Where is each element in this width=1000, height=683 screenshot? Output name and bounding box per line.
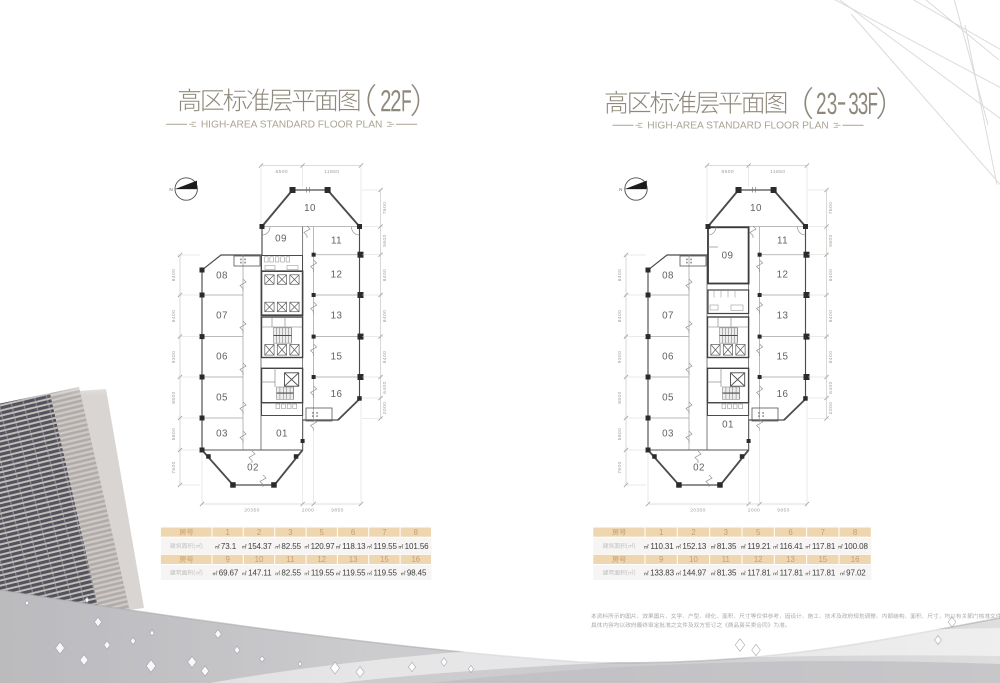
svg-text:9300: 9300 (617, 351, 623, 363)
svg-text:5600: 5600 (382, 234, 388, 246)
svg-text:02: 02 (693, 463, 705, 474)
svg-text:2000: 2000 (828, 402, 834, 414)
svg-text:119.55: 119.55 (311, 569, 335, 578)
svg-text:9850: 9850 (777, 508, 789, 514)
svg-text:117.81: 117.81 (780, 569, 804, 578)
svg-text:15: 15 (380, 555, 389, 564)
svg-text:152.13: 152.13 (682, 542, 707, 551)
svg-text:03: 03 (216, 429, 228, 440)
svg-text:147.11: 147.11 (248, 569, 272, 578)
svg-text:09: 09 (275, 234, 287, 245)
svg-text:06: 06 (662, 352, 674, 363)
svg-text:97.02: 97.02 (846, 569, 866, 578)
svg-text:09: 09 (722, 251, 734, 262)
svg-text:9: 9 (226, 555, 230, 564)
svg-text:2000: 2000 (302, 508, 314, 514)
svg-text:119.55: 119.55 (374, 542, 398, 551)
svg-text:8: 8 (414, 528, 418, 537)
svg-text:7600: 7600 (171, 461, 177, 473)
svg-text:3: 3 (288, 528, 292, 537)
svg-text:100.08: 100.08 (844, 542, 869, 551)
svg-text:1: 1 (226, 528, 230, 537)
svg-text:9850: 9850 (331, 508, 343, 514)
svg-text:01: 01 (722, 420, 734, 431)
svg-text:10: 10 (689, 555, 698, 564)
svg-text:16: 16 (777, 389, 789, 400)
svg-text:69.67: 69.67 (219, 569, 239, 578)
svg-text:08: 08 (662, 271, 674, 282)
svg-text:2000: 2000 (748, 508, 760, 514)
svg-text:81.35: 81.35 (717, 542, 737, 551)
svg-text:8400: 8400 (382, 310, 388, 322)
svg-text:01: 01 (276, 429, 288, 440)
svg-text:11: 11 (722, 555, 730, 564)
svg-text:15: 15 (777, 352, 789, 363)
svg-text:117.81: 117.81 (747, 569, 771, 578)
svg-text:10: 10 (255, 555, 264, 564)
svg-text:3: 3 (724, 528, 728, 537)
svg-text:13: 13 (349, 555, 358, 564)
svg-text:11: 11 (777, 236, 788, 247)
svg-text:5: 5 (756, 528, 761, 537)
svg-text:20350: 20350 (244, 508, 260, 514)
svg-text:12: 12 (754, 555, 763, 564)
svg-text:8500: 8500 (276, 169, 288, 175)
svg-text:08: 08 (216, 271, 228, 282)
svg-text:8400: 8400 (828, 269, 834, 281)
svg-text:119.21: 119.21 (747, 542, 771, 551)
svg-text:116.41: 116.41 (780, 542, 804, 551)
svg-text:8500: 8500 (722, 169, 734, 175)
svg-text:81.35: 81.35 (717, 569, 737, 578)
svg-text:2000: 2000 (382, 402, 388, 414)
svg-text:119.55: 119.55 (374, 569, 398, 578)
svg-text:07: 07 (662, 311, 674, 322)
svg-text:2: 2 (257, 528, 261, 537)
svg-text:5600: 5600 (828, 234, 834, 246)
svg-text:HIGH-AREA STANDARD FLOOR PLAN: HIGH-AREA STANDARD FLOOR PLAN (201, 120, 383, 131)
svg-text:20350: 20350 (690, 508, 706, 514)
svg-text:73.1: 73.1 (221, 542, 237, 551)
svg-text:13: 13 (777, 311, 789, 322)
svg-text:HIGH-AREA STANDARD FLOOR PLAN: HIGH-AREA STANDARD FLOOR PLAN (647, 121, 829, 132)
svg-text:7: 7 (821, 528, 825, 537)
svg-text:118.13: 118.13 (342, 542, 366, 551)
svg-text:8: 8 (853, 528, 857, 537)
svg-text:N: N (619, 187, 622, 192)
svg-text:117.81: 117.81 (812, 542, 836, 551)
svg-text:03: 03 (662, 429, 674, 440)
svg-text:8400: 8400 (382, 351, 388, 363)
svg-text:13: 13 (331, 311, 343, 322)
svg-text:5800: 5800 (171, 428, 177, 440)
svg-text:15: 15 (818, 555, 827, 564)
svg-text:10: 10 (750, 203, 762, 214)
svg-text:144.97: 144.97 (682, 569, 707, 578)
svg-text:11: 11 (331, 236, 342, 247)
svg-text:82.55: 82.55 (281, 569, 301, 578)
svg-text:2: 2 (691, 528, 695, 537)
svg-text:11: 11 (286, 555, 294, 564)
svg-text:07: 07 (216, 311, 228, 322)
svg-text:101.56: 101.56 (405, 542, 430, 551)
svg-text:98.45: 98.45 (407, 569, 427, 578)
svg-text:1: 1 (659, 528, 663, 537)
svg-text:7: 7 (382, 528, 386, 537)
svg-text:154.37: 154.37 (248, 542, 273, 551)
svg-text:8500: 8500 (617, 391, 623, 403)
svg-text:6400: 6400 (828, 381, 834, 393)
svg-text:7600: 7600 (617, 461, 623, 473)
svg-text:117.81: 117.81 (812, 569, 836, 578)
svg-text:9300: 9300 (171, 351, 177, 363)
svg-text:05: 05 (662, 393, 674, 404)
svg-text:10: 10 (304, 203, 316, 214)
svg-text:9: 9 (659, 555, 663, 564)
svg-text:16: 16 (851, 555, 860, 564)
svg-text:06: 06 (216, 352, 228, 363)
svg-text:6: 6 (351, 528, 355, 537)
svg-text:13: 13 (786, 555, 795, 564)
svg-text:8400: 8400 (828, 351, 834, 363)
svg-text:8400: 8400 (617, 310, 623, 322)
svg-text:133.83: 133.83 (650, 569, 675, 578)
svg-text:12: 12 (317, 555, 326, 564)
svg-text:5: 5 (320, 528, 325, 537)
svg-text:15: 15 (331, 352, 343, 363)
svg-text:02: 02 (247, 463, 259, 474)
svg-text:12: 12 (777, 270, 789, 281)
svg-text:7600: 7600 (828, 202, 834, 214)
svg-text:8400: 8400 (382, 269, 388, 281)
svg-text:11850: 11850 (324, 169, 339, 175)
svg-text:8500: 8500 (171, 391, 177, 403)
svg-text:6400: 6400 (382, 381, 388, 393)
svg-text:6: 6 (788, 528, 792, 537)
svg-text:05: 05 (216, 393, 228, 404)
svg-text:119.55: 119.55 (342, 569, 366, 578)
svg-text:82.55: 82.55 (281, 542, 301, 551)
svg-text:16: 16 (331, 389, 343, 400)
svg-text:12: 12 (331, 270, 343, 281)
svg-text:16: 16 (411, 555, 420, 564)
svg-text:8400: 8400 (171, 310, 177, 322)
svg-text:8400: 8400 (828, 310, 834, 322)
svg-text:120.97: 120.97 (311, 542, 336, 551)
svg-text:7600: 7600 (382, 202, 388, 214)
svg-text:11850: 11850 (770, 169, 785, 175)
svg-text:N: N (169, 187, 172, 192)
svg-text:8400: 8400 (617, 269, 623, 281)
svg-text:8400: 8400 (171, 269, 177, 281)
svg-text:110.31: 110.31 (650, 542, 674, 551)
svg-text:5800: 5800 (617, 428, 623, 440)
